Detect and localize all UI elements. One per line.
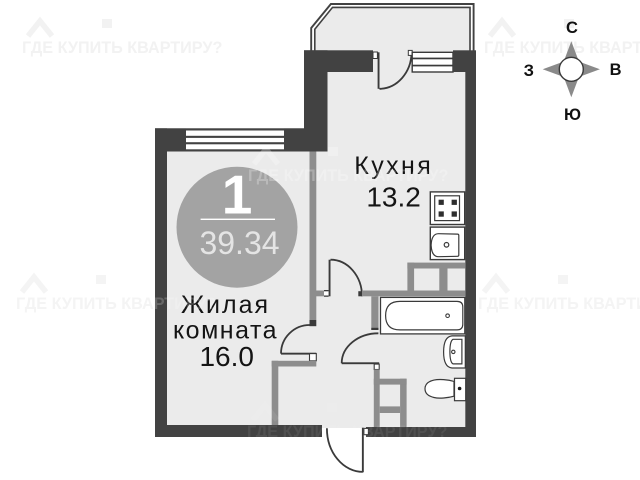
- svg-text:ГДЕ КУПИТЬ КВАРТИРУ?: ГДЕ КУПИТЬ КВАРТИРУ?: [247, 423, 447, 441]
- svg-text:16.0: 16.0: [199, 341, 254, 372]
- svg-text:ГДЕ КУПИТЬ КВАРТИРУ?: ГДЕ КУПИТЬ КВАРТИРУ?: [484, 39, 640, 57]
- svg-text:С: С: [566, 19, 578, 37]
- svg-text:ГДЕ КУПИТЬ КВАРТИРУ?: ГДЕ КУПИТЬ КВАРТИРУ?: [478, 295, 640, 313]
- svg-text:В: В: [610, 61, 622, 79]
- svg-text:ГДЕ КУПИТЬ КВАРТИРУ?: ГДЕ КУПИТЬ КВАРТИРУ?: [16, 295, 216, 313]
- svg-text:Ю: Ю: [564, 106, 581, 124]
- svg-text:13.2: 13.2: [366, 181, 421, 212]
- svg-text:ГДЕ КУПИТЬ КВАРТИРУ?: ГДЕ КУПИТЬ КВАРТИРУ?: [248, 167, 448, 185]
- svg-text:ГДЕ КУПИТЬ КВАРТИРУ?: ГДЕ КУПИТЬ КВАРТИРУ?: [22, 39, 222, 57]
- svg-text:39.34: 39.34: [199, 225, 279, 261]
- svg-text:З: З: [524, 62, 534, 80]
